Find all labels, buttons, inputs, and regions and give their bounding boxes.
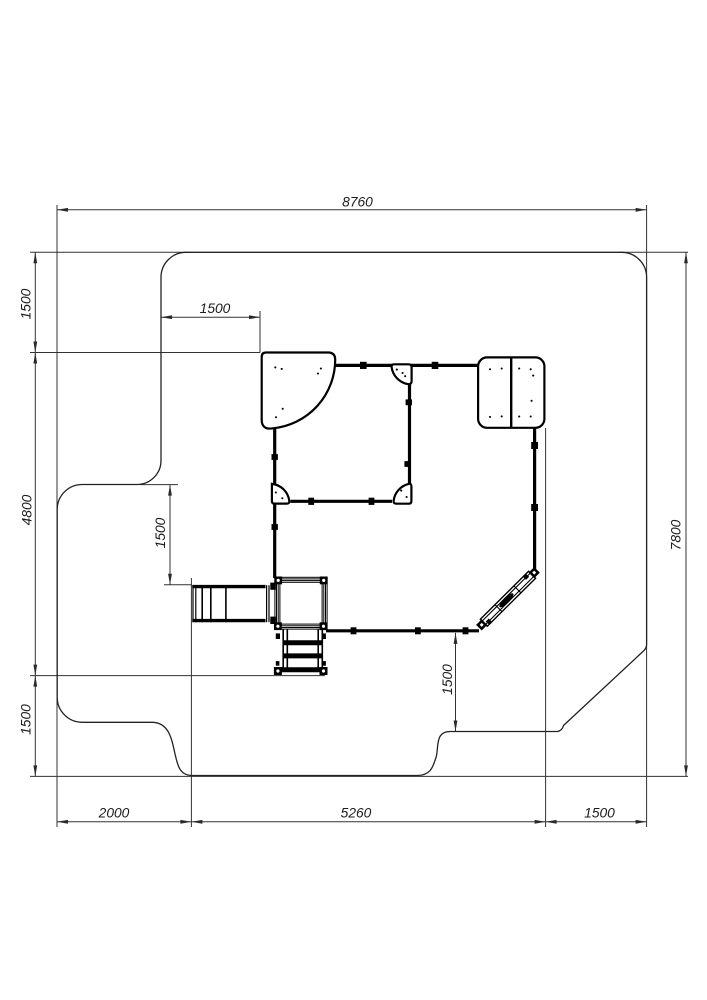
svg-text:1500: 1500 — [440, 664, 455, 695]
svg-text:5260: 5260 — [341, 805, 372, 820]
svg-text:7800: 7800 — [669, 519, 684, 550]
svg-text:1500: 1500 — [584, 805, 615, 820]
svg-text:1500: 1500 — [200, 301, 231, 316]
svg-text:4800: 4800 — [19, 494, 34, 525]
svg-text:1500: 1500 — [18, 704, 33, 735]
svg-text:1500: 1500 — [18, 288, 33, 319]
svg-text:2000: 2000 — [98, 805, 130, 820]
svg-text:8760: 8760 — [342, 195, 373, 210]
svg-text:1500: 1500 — [153, 517, 168, 548]
